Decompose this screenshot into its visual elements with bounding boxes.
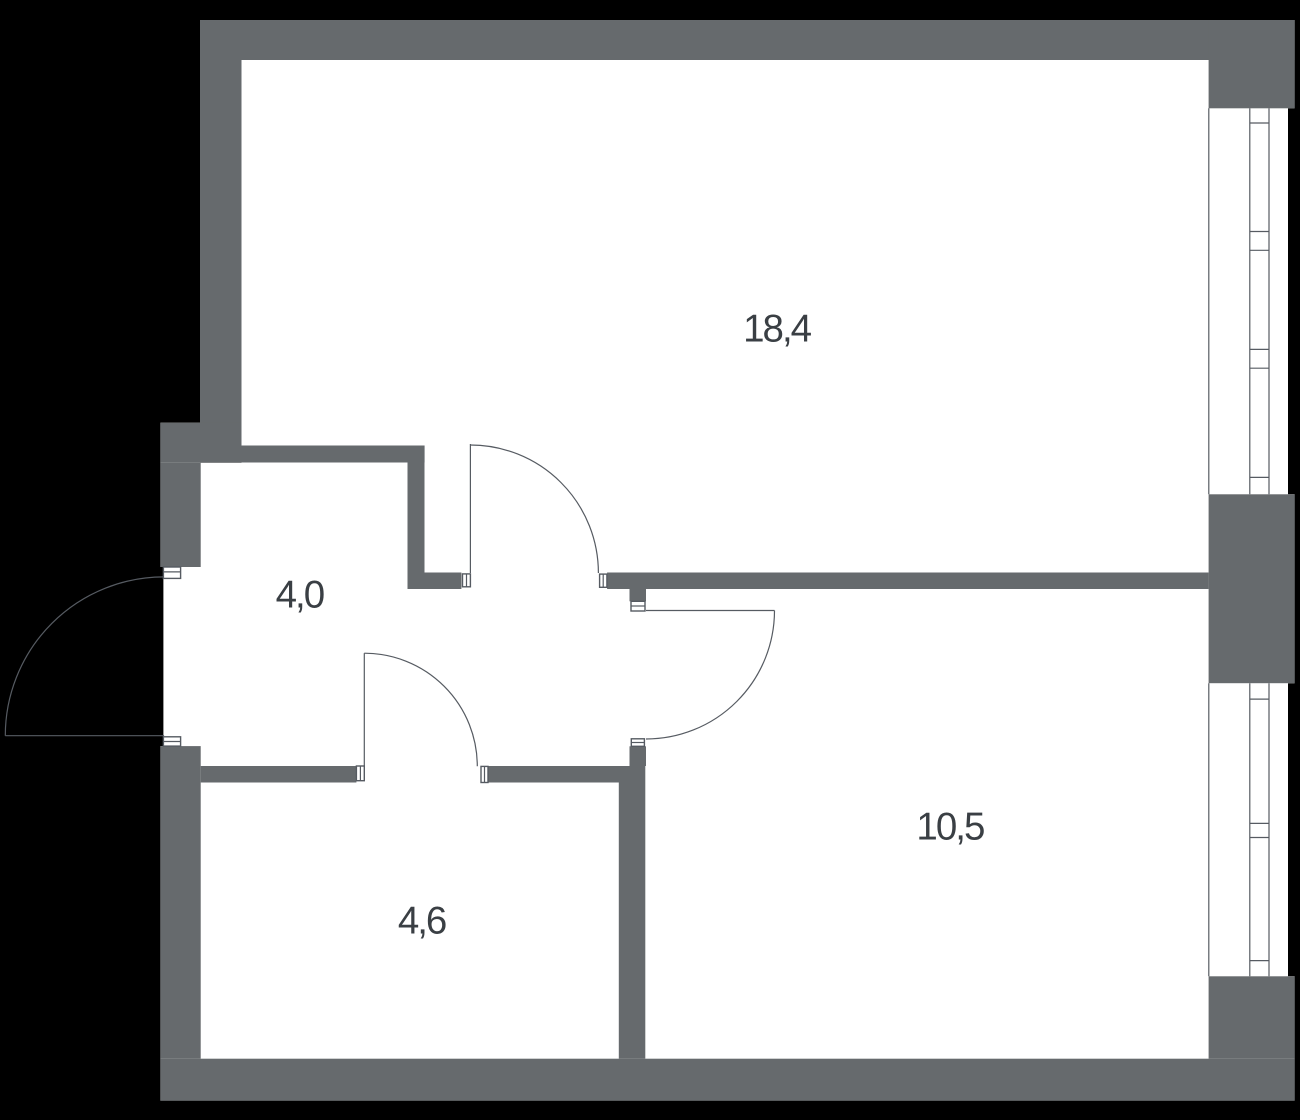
svg-text:10,5: 10,5 bbox=[916, 806, 984, 849]
svg-text:18,4: 18,4 bbox=[743, 307, 812, 350]
svg-text:4,6: 4,6 bbox=[398, 900, 446, 943]
svg-text:4,0: 4,0 bbox=[276, 573, 324, 616]
